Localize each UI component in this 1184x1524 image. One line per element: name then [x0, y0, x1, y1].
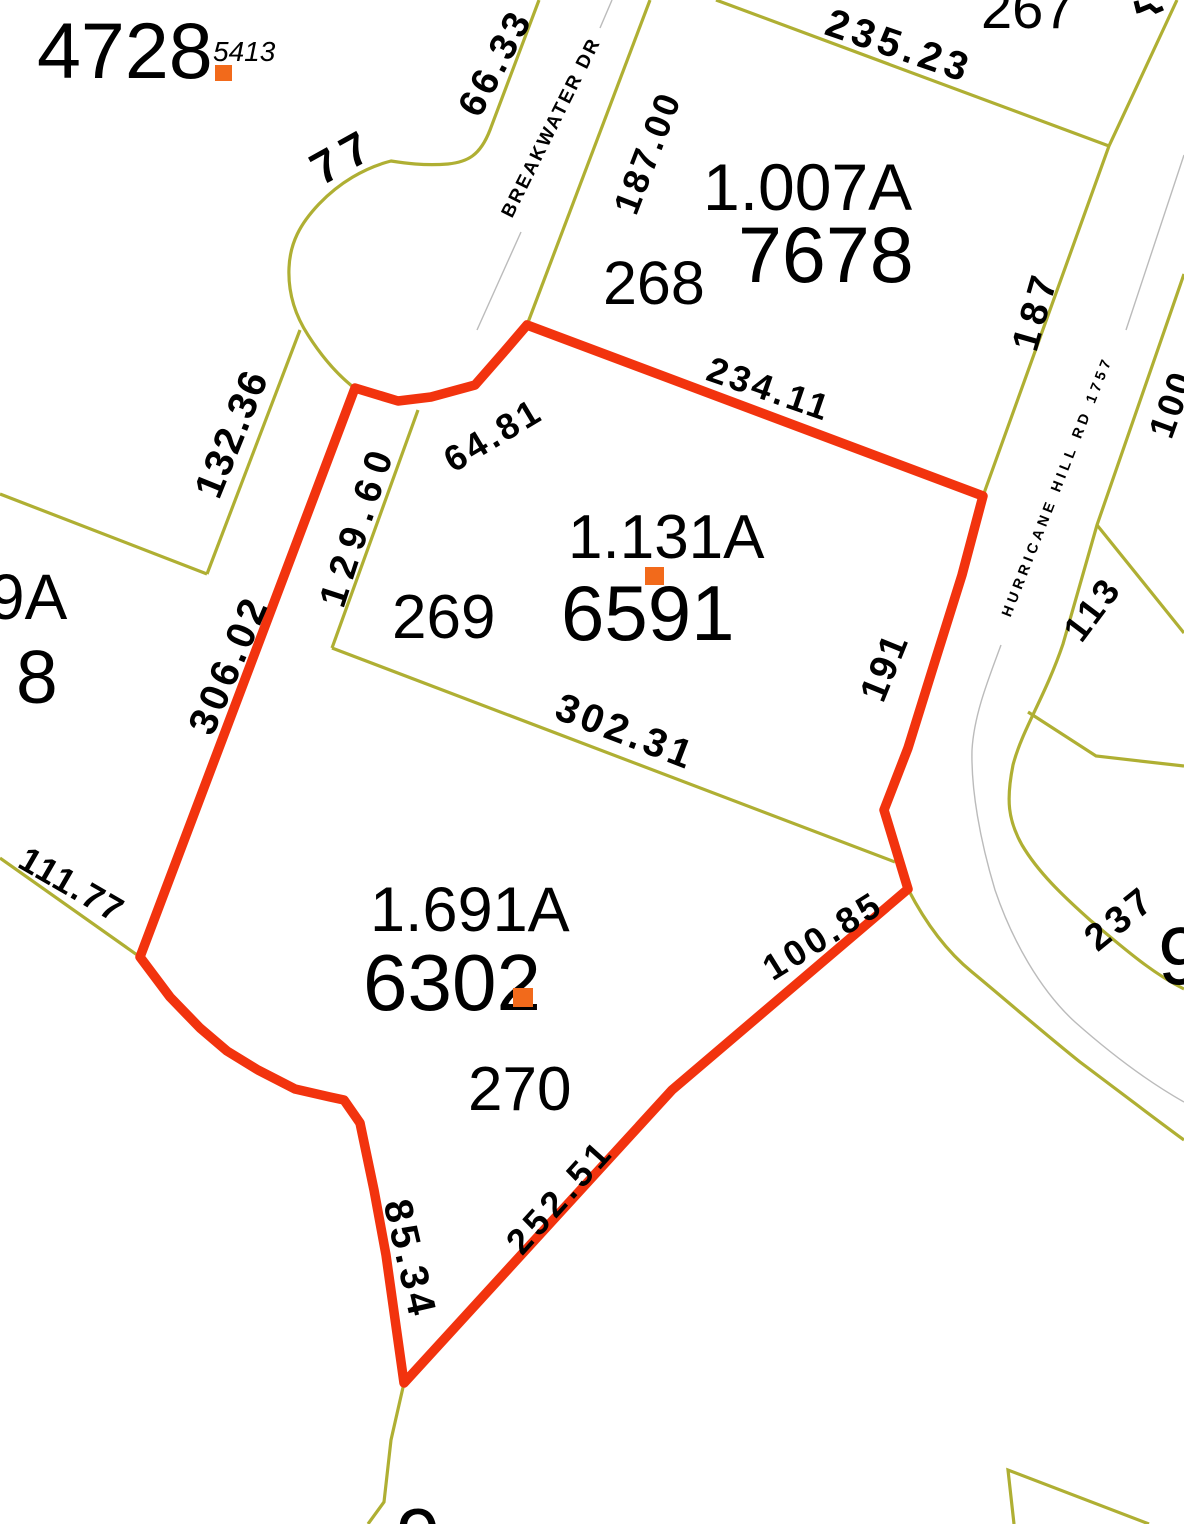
svg-text:268: 268: [603, 249, 705, 317]
svg-text:9: 9: [396, 1492, 441, 1524]
svg-text:7678: 7678: [738, 210, 914, 299]
svg-text:6302: 6302: [363, 938, 541, 1027]
svg-text:4728: 4728: [37, 6, 213, 95]
svg-text:267: 267: [981, 0, 1074, 40]
svg-text:6591: 6591: [561, 569, 735, 657]
svg-text:1.691A: 1.691A: [370, 875, 570, 945]
svg-text:8: 8: [16, 635, 58, 719]
svg-text:1.131A: 1.131A: [568, 503, 765, 572]
svg-text:5413: 5413: [213, 36, 276, 67]
svg-text:270: 270: [468, 1055, 571, 1124]
svg-text:9A: 9A: [0, 561, 68, 633]
svg-text:9: 9: [1158, 911, 1184, 1002]
svg-text:269: 269: [392, 583, 495, 652]
